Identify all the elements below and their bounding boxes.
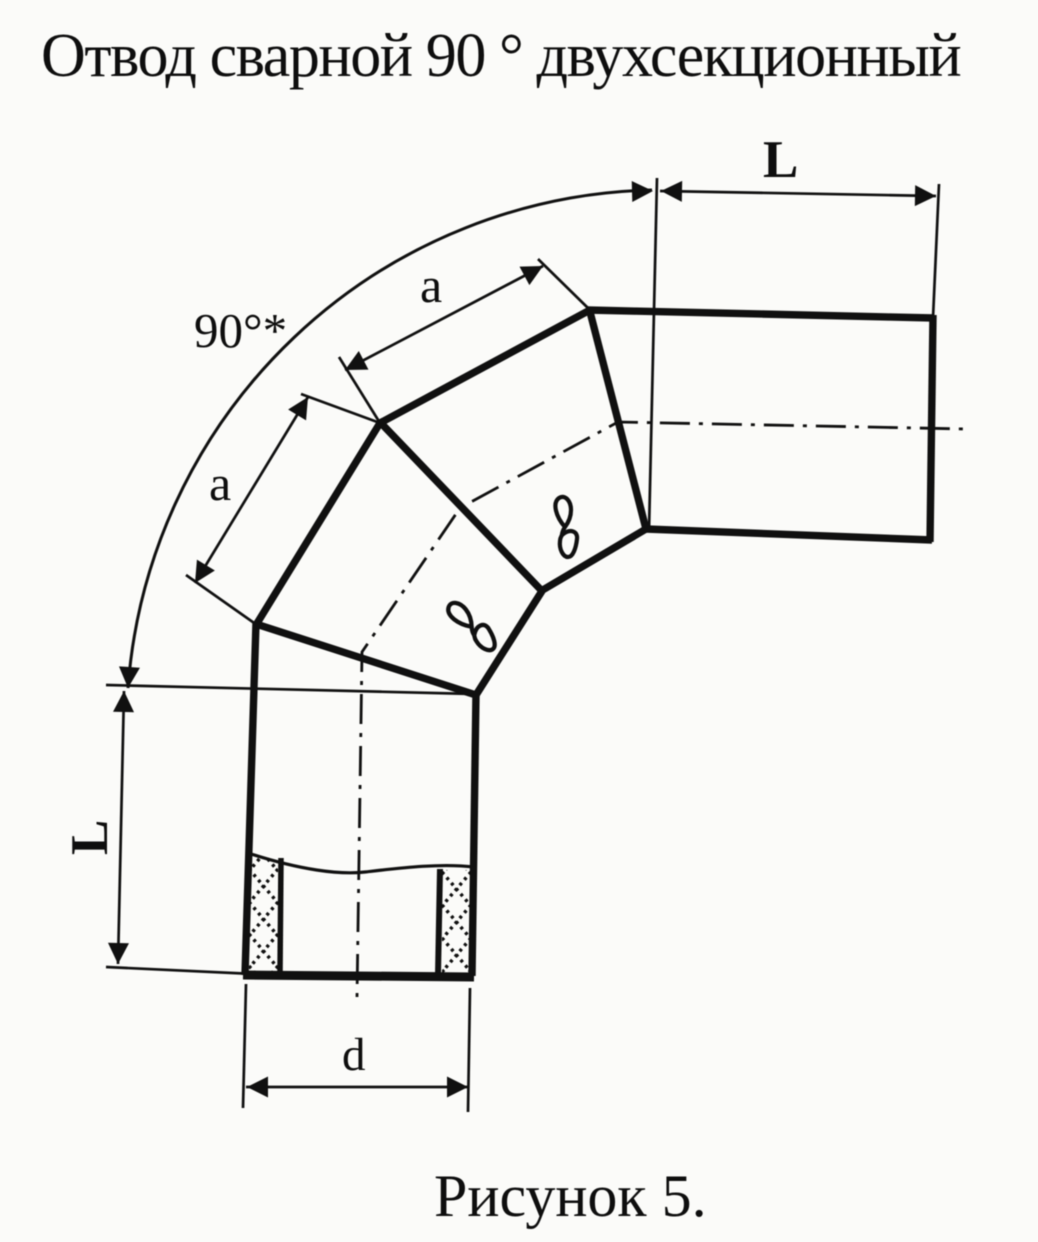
svg-text:d: d (342, 1029, 366, 1081)
svg-text:Отвод сварной 90 ° двухсекцион: Отвод сварной 90 ° двухсекционный (41, 22, 961, 90)
svg-text:L: L (61, 820, 119, 855)
svg-text:a: a (209, 455, 231, 511)
svg-text:a: a (420, 257, 442, 313)
svg-text:L: L (763, 131, 798, 189)
svg-text:90°*: 90°* (194, 303, 287, 358)
svg-text:Рисунок 5.: Рисунок 5. (434, 1163, 707, 1229)
